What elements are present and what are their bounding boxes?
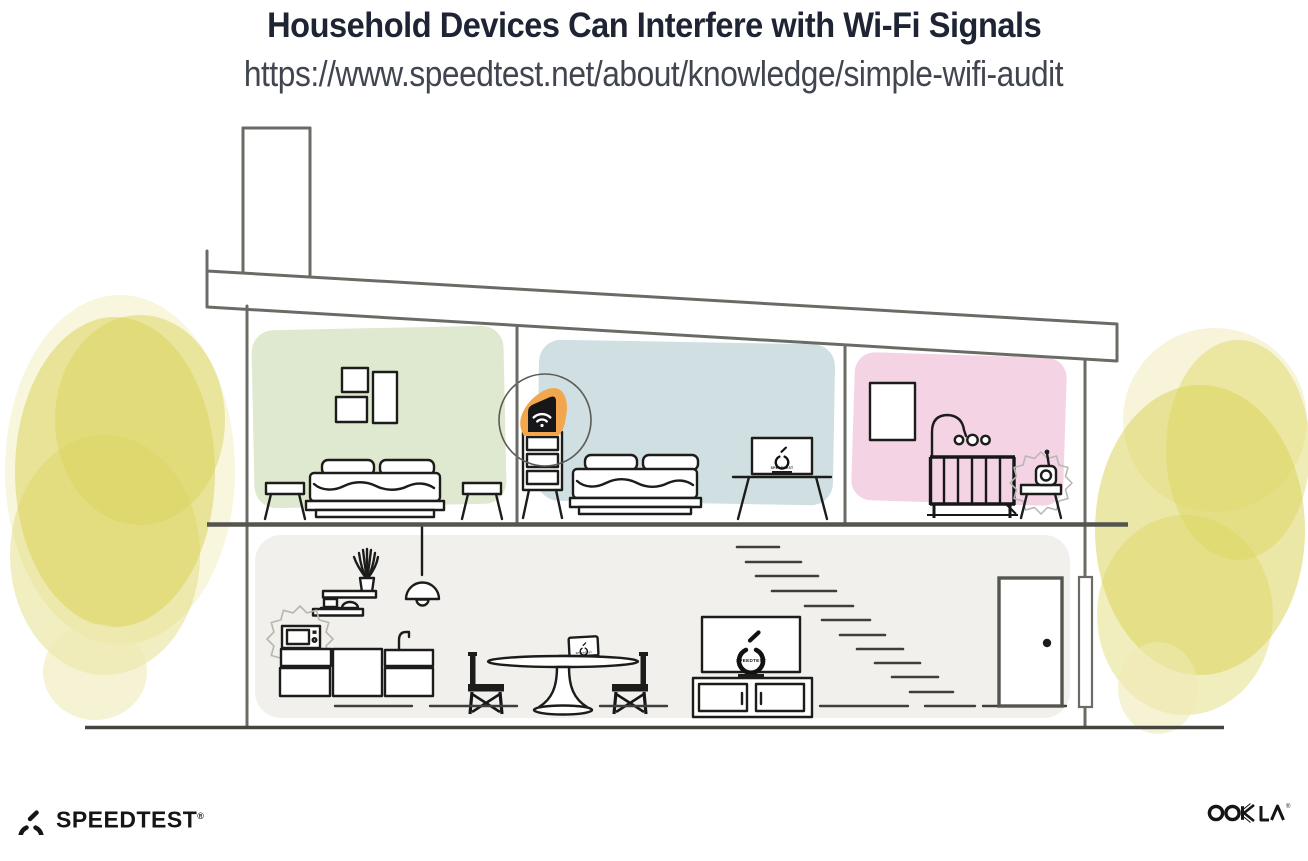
right-tree-watercolor	[1095, 328, 1308, 734]
nursery-picture-frame	[870, 383, 915, 440]
chimney	[243, 128, 310, 281]
left-tree-watercolor	[5, 295, 235, 720]
registered-mark: ®	[197, 811, 204, 821]
router-dresser	[523, 432, 562, 518]
downspout	[1079, 577, 1092, 707]
living-tv-label: SPEEDTEST	[736, 658, 766, 663]
ookla-letter-o2	[1226, 806, 1239, 819]
ookla-letter-k-hatched	[1243, 804, 1255, 823]
tv-console	[693, 678, 812, 717]
green-bedroom-bed	[306, 460, 444, 517]
blue-bedroom-bed	[570, 455, 701, 514]
ookla-logo: OOKLA ®	[1206, 799, 1296, 830]
speedtest-gauge-icon	[14, 801, 48, 835]
speedtest-logo: SPEEDTEST®	[14, 799, 204, 837]
door-knob	[1043, 639, 1051, 647]
ookla-letter-a	[1272, 806, 1284, 820]
ookla-letter-o1	[1209, 806, 1222, 819]
front-door	[999, 578, 1062, 706]
living-room-tv: SPEEDTEST	[702, 617, 800, 678]
bedroom-tv-label: SPEEDTEST	[771, 466, 794, 470]
registered-mark: ®	[1286, 803, 1291, 810]
speedtest-wordmark: SPEEDTEST®	[56, 799, 204, 837]
house-cross-section-illustration: SPEEDTEST	[0, 0, 1308, 861]
ookla-letter-l	[1261, 806, 1269, 820]
